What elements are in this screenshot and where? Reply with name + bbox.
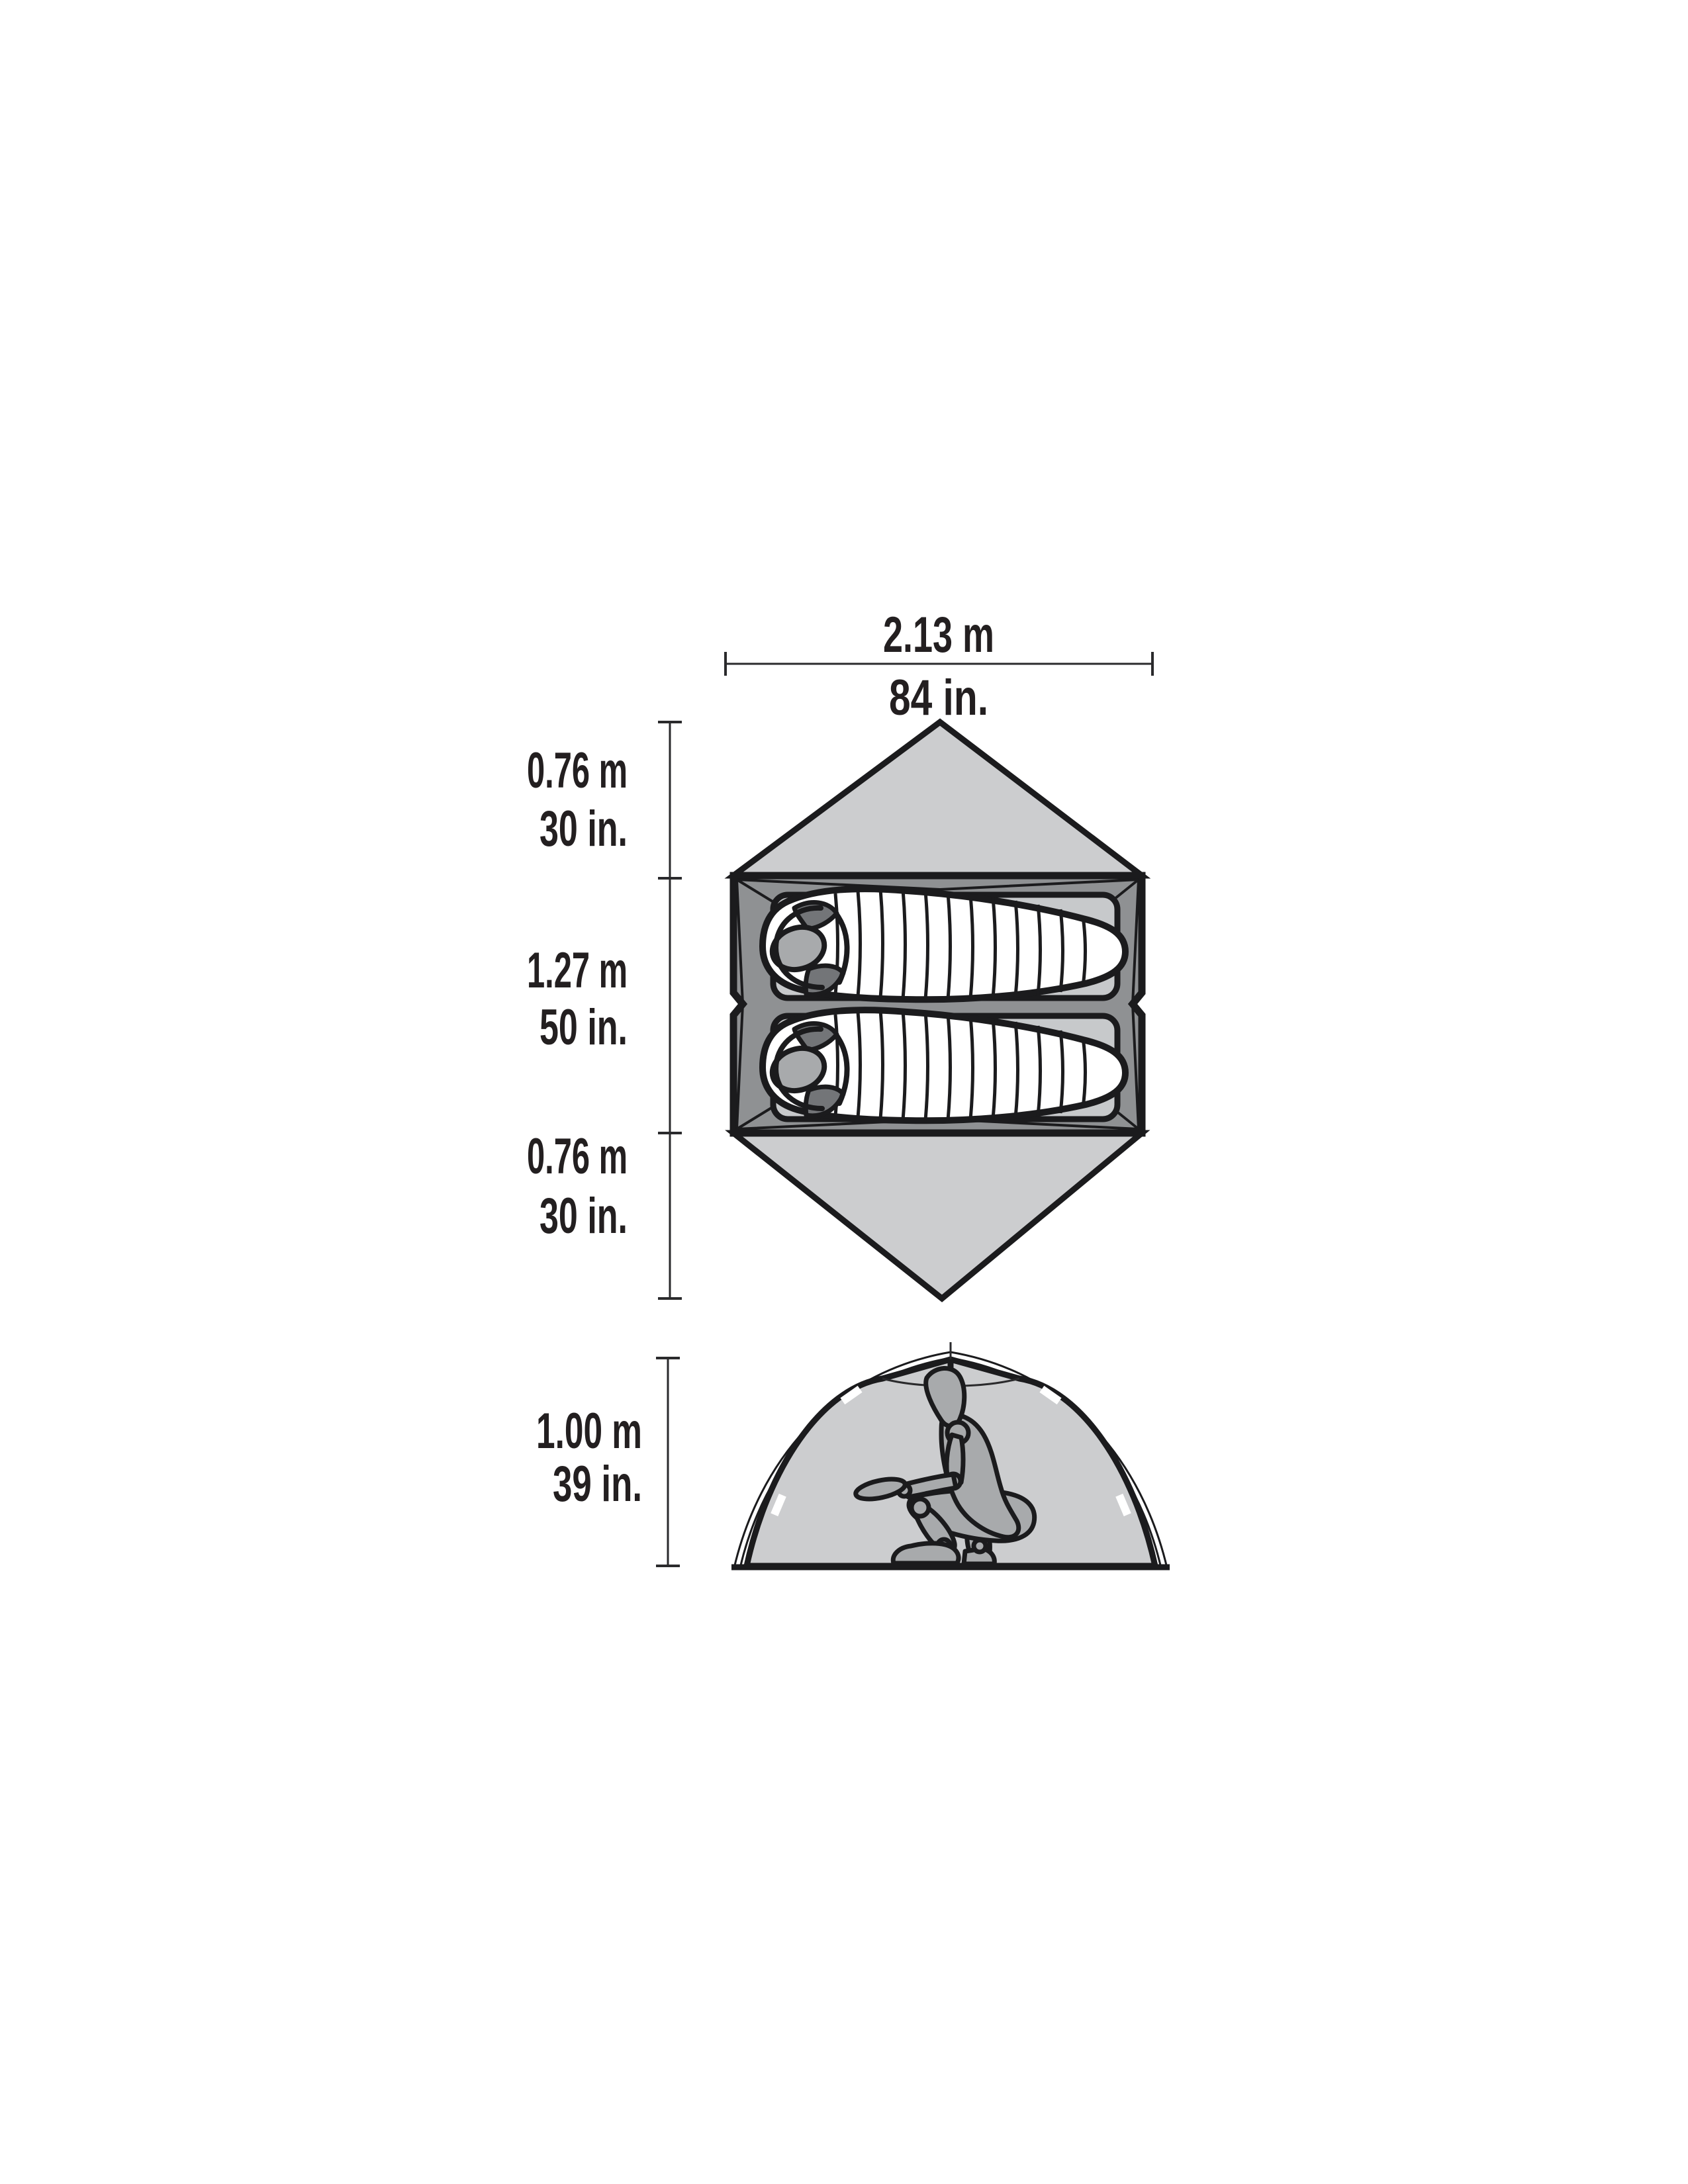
depth-section1-imperial-label: 30 in. [539,801,628,857]
depth-section3-imperial-label: 30 in. [539,1188,628,1244]
width-imperial-label: 84 in. [889,670,988,726]
height-metric-label: 1.00 m [536,1403,642,1459]
knee-joint [912,1499,929,1516]
width-dimension: 2.13 m 84 in. [726,607,1152,726]
vestibule-bottom-triangle [733,1133,1142,1298]
depth-section2-imperial-label: 50 in. [539,999,628,1056]
height-dimension: 1.00 m 39 in. [536,1358,680,1566]
near-foot [893,1543,959,1563]
vestibule-top-triangle [733,722,1142,876]
height-imperial-label: 39 in. [553,1456,642,1512]
depth-section1-metric-label: 0.76 m [527,743,628,799]
depth-dimension: 0.76 m 30 in. 1.27 m 50 in. 0.76 m 30 in… [527,722,682,1298]
tent-side-view [731,1342,1170,1568]
tent-diagram-canvas: 2.13 m 84 in. 0.76 m 30 in. 1.27 m 50 in… [0,0,1688,2184]
depth-section3-metric-label: 0.76 m [527,1128,628,1185]
tent-dimension-spec-sheet: 2.13 m 84 in. 0.76 m 30 in. 1.27 m 50 in… [0,0,1688,2184]
width-metric-label: 2.13 m [883,607,994,663]
depth-section2-metric-label: 1.27 m [527,942,628,999]
tent-top-view [733,722,1142,1298]
